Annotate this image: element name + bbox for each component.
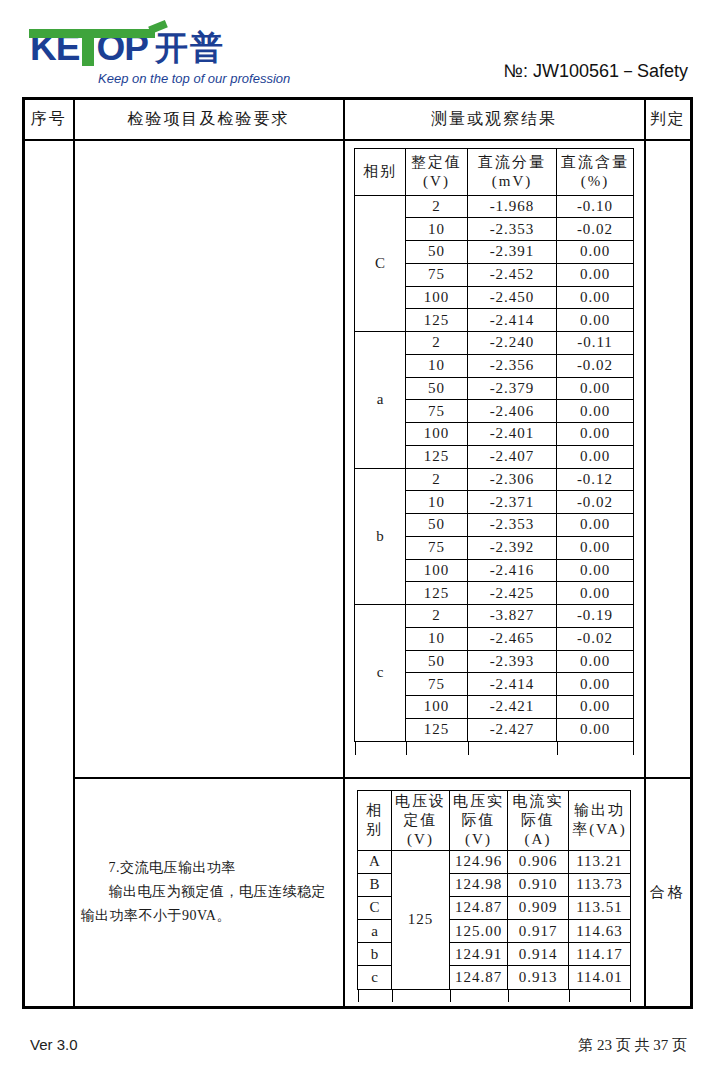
current-actual-value: 0.914 — [508, 943, 569, 966]
dc-content-value: 0.00 — [557, 696, 634, 719]
dc-content-value: -0.12 — [557, 468, 634, 491]
dc-content-value: -0.02 — [557, 491, 634, 514]
dc-component-value: -2.306 — [468, 468, 557, 491]
setting-value: 100 — [406, 696, 468, 719]
dc-content-value: 0.00 — [557, 400, 634, 423]
setting-value: 75 — [406, 400, 468, 423]
dc-component-value: -2.240 — [468, 332, 557, 355]
dc-row-c-2: c2-3.827-0.19 — [355, 605, 634, 628]
logo-text-chinese: 开普 — [155, 28, 225, 68]
dc-component-value: -2.414 — [468, 309, 557, 332]
dc-component-value: -2.353 — [468, 514, 557, 537]
col-header-result: 测量或观察结果 — [344, 99, 645, 140]
dc-content-value: 0.00 — [557, 673, 634, 696]
dc-content-value: -0.11 — [557, 332, 634, 355]
dc-component-value: -2.407 — [468, 445, 557, 468]
requirement-cell: 7.交流电压输出功率 输出电压为额定值，电压连续稳定输出功率不小于90VA。 — [74, 778, 344, 1008]
dc-content-value: 0.00 — [557, 514, 634, 537]
power-col-voltage-setting: 电压设 定值 (V) — [392, 790, 450, 850]
dc-table-bottom-stub — [355, 742, 634, 755]
setting-value: 50 — [406, 241, 468, 264]
section1-result-cell: 相别 整定值 (V) 直流分量 (mV) — [344, 140, 645, 778]
setting-value: 75 — [406, 263, 468, 286]
dc-content-value: -0.10 — [557, 195, 634, 218]
logo-green-bar-icon — [29, 29, 155, 38]
page-number: 第 23 页 共 37 页 — [578, 1036, 687, 1055]
output-power-table: 相 别 电压设 定值 (V) 电压实 际值 — [357, 790, 631, 990]
current-actual-value: 0.913 — [508, 966, 569, 989]
dc-component-table: 相别 整定值 (V) 直流分量 (mV) — [354, 148, 634, 742]
voltage-actual-value: 124.87 — [450, 966, 508, 989]
dc-content-value: 0.00 — [557, 445, 634, 468]
dc-component-value: -1.968 — [468, 195, 557, 218]
voltage-setting-value: 125 — [392, 850, 450, 989]
dc-content-value: 0.00 — [557, 263, 634, 286]
phase-label: c — [358, 966, 392, 989]
phase-label: b — [358, 943, 392, 966]
setting-value: 50 — [406, 650, 468, 673]
dc-row-a-2: a2-2.240-0.11 — [355, 332, 634, 355]
dc-content-value: 0.00 — [557, 377, 634, 400]
power-col-voltage-actual: 电压实 际值 (V) — [450, 790, 508, 850]
dc-col-component: 直流分量 (mV) — [468, 148, 557, 195]
setting-value: 10 — [406, 627, 468, 650]
voltage-actual-value: 125.00 — [450, 920, 508, 943]
serial-number-cell — [24, 140, 74, 1008]
dc-component-value: -2.425 — [468, 582, 557, 605]
requirement-body: 输出电压为额定值，电压连续稳定输出功率不小于90VA。 — [81, 880, 337, 928]
phase-label: C — [358, 896, 392, 919]
section2-result-cell: 相 别 电压设 定值 (V) 电压实 际值 — [344, 778, 645, 1008]
dc-row-C-2: C2-1.968-0.10 — [355, 195, 634, 218]
output-power-value: 114.01 — [569, 966, 631, 989]
power-table-header-row: 相 别 电压设 定值 (V) 电压实 际值 — [358, 790, 631, 850]
dc-component-value: -2.465 — [468, 627, 557, 650]
setting-value: 125 — [406, 718, 468, 741]
setting-value: 100 — [406, 423, 468, 446]
dc-component-value: -2.356 — [468, 354, 557, 377]
setting-value: 10 — [406, 218, 468, 241]
inspection-table-header-row: 序号 检验项目及检验要求 测量或观察结果 判定 — [24, 99, 692, 140]
dc-content-value: 0.00 — [557, 286, 634, 309]
dc-component-value: -2.406 — [468, 400, 557, 423]
current-actual-value: 0.906 — [508, 850, 569, 873]
setting-value: 10 — [406, 354, 468, 377]
dc-component-value: -2.401 — [468, 423, 557, 446]
output-power-value: 113.73 — [569, 873, 631, 896]
dc-component-value: -2.452 — [468, 263, 557, 286]
output-power-value: 114.17 — [569, 943, 631, 966]
current-actual-value: 0.910 — [508, 873, 569, 896]
power-col-current-actual: 电流实 际值 (A) — [508, 790, 569, 850]
setting-value: 75 — [406, 673, 468, 696]
version-label: Ver 3.0 — [30, 1036, 78, 1053]
dc-component-value: -2.450 — [468, 286, 557, 309]
dc-component-value: -3.827 — [468, 605, 557, 628]
dc-content-value: 0.00 — [557, 423, 634, 446]
section1-item-cell — [74, 140, 344, 778]
phase-label: a — [355, 332, 406, 469]
section1-row: 相别 整定值 (V) 直流分量 (mV) — [24, 140, 692, 778]
dc-content-value: -0.02 — [557, 627, 634, 650]
dc-component-value: -2.371 — [468, 491, 557, 514]
dc-component-value: -2.353 — [468, 218, 557, 241]
phase-label: b — [355, 468, 406, 605]
dc-component-value: -2.391 — [468, 241, 557, 264]
phase-label: A — [358, 850, 392, 873]
section2-row: 7.交流电压输出功率 输出电压为额定值，电压连续稳定输出功率不小于90VA。 相 — [24, 778, 692, 1008]
voltage-actual-value: 124.96 — [450, 850, 508, 873]
dc-row-b-2: b2-2.306-0.12 — [355, 468, 634, 491]
section1-verdict-cell — [645, 140, 692, 778]
setting-value: 2 — [406, 195, 468, 218]
setting-value: 50 — [406, 514, 468, 537]
power-row-A: A125124.960.906113.21 — [358, 850, 631, 873]
logo-tagline: Keep on the top of our profession — [98, 71, 290, 86]
dc-content-value: -0.02 — [557, 354, 634, 377]
voltage-actual-value: 124.91 — [450, 943, 508, 966]
setting-value: 125 — [406, 309, 468, 332]
dc-col-setting: 整定值 (V) — [406, 148, 468, 195]
output-power-value: 113.21 — [569, 850, 631, 873]
phase-label: c — [355, 605, 406, 742]
current-actual-value: 0.909 — [508, 896, 569, 919]
voltage-actual-value: 124.87 — [450, 896, 508, 919]
dc-col-phase: 相别 — [355, 148, 406, 195]
power-col-output-power: 输出功 率(VA) — [569, 790, 631, 850]
power-table-body: A125124.960.906113.21B124.980.910113.73C… — [358, 850, 631, 989]
setting-value: 75 — [406, 536, 468, 559]
dc-content-value: -0.19 — [557, 605, 634, 628]
col-header-item: 检验项目及检验要求 — [74, 99, 344, 140]
voltage-actual-value: 124.98 — [450, 873, 508, 896]
setting-value: 100 — [406, 559, 468, 582]
dc-content-value: 0.00 — [557, 241, 634, 264]
setting-value: 50 — [406, 377, 468, 400]
dc-component-value: -2.414 — [468, 673, 557, 696]
setting-value: 2 — [406, 468, 468, 491]
col-header-serial: 序号 — [24, 99, 74, 140]
verdict-value: 合格 — [645, 778, 692, 1008]
ketop-logo: KE OP 开普 Keep on the top of our professi… — [30, 22, 290, 86]
setting-value: 10 — [406, 491, 468, 514]
output-power-value: 113.51 — [569, 896, 631, 919]
document-number: №: JW100561－Safety — [504, 59, 688, 83]
phase-label: C — [355, 195, 406, 332]
phase-label: a — [358, 920, 392, 943]
setting-value: 125 — [406, 445, 468, 468]
dc-content-value: 0.00 — [557, 559, 634, 582]
dc-content-value: 0.00 — [557, 582, 634, 605]
dc-component-value: -2.379 — [468, 377, 557, 400]
col-header-verdict: 判定 — [645, 99, 692, 140]
dc-content-value: 0.00 — [557, 718, 634, 741]
setting-value: 2 — [406, 605, 468, 628]
dc-component-value: -2.421 — [468, 696, 557, 719]
dc-component-value: -2.393 — [468, 650, 557, 673]
dc-col-content: 直流含量 (%) — [557, 148, 634, 195]
current-actual-value: 0.917 — [508, 920, 569, 943]
setting-value: 100 — [406, 286, 468, 309]
setting-value: 2 — [406, 332, 468, 355]
dc-content-value: 0.00 — [557, 536, 634, 559]
inspection-table: 序号 检验项目及检验要求 测量或观察结果 判定 — [22, 97, 693, 1009]
dc-content-value: 0.00 — [557, 309, 634, 332]
phase-label: B — [358, 873, 392, 896]
setting-value: 125 — [406, 582, 468, 605]
report-page: KE OP 开普 Keep on the top of our professi… — [0, 0, 714, 1089]
power-table-bottom-stub — [358, 990, 631, 1002]
output-power-value: 114.63 — [569, 920, 631, 943]
dc-component-value: -2.392 — [468, 536, 557, 559]
dc-component-value: -2.416 — [468, 559, 557, 582]
dc-content-value: -0.02 — [557, 218, 634, 241]
dc-table-body: C2-1.968-0.1010-2.353-0.0250-2.3910.0075… — [355, 195, 634, 741]
dc-content-value: 0.00 — [557, 650, 634, 673]
logo-wordmark: KE OP 开普 — [30, 22, 290, 68]
requirement-title: 7.交流电压输出功率 — [81, 856, 337, 880]
dc-component-value: -2.427 — [468, 718, 557, 741]
power-col-phase: 相 别 — [358, 790, 392, 850]
logo-t-stem-icon — [82, 38, 94, 66]
dc-table-header-row: 相别 整定值 (V) 直流分量 (mV) — [355, 148, 634, 195]
